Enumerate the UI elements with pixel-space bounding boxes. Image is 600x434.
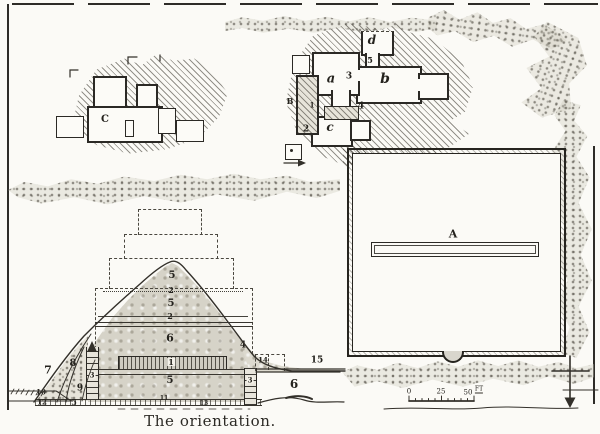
room-c-label: c — [326, 121, 333, 133]
building-c-label: C — [101, 115, 109, 125]
room-a-label: a — [327, 73, 335, 86]
enclosure-a-gate-semicircle — [442, 351, 464, 363]
base-label-11: 11 — [160, 396, 168, 402]
num-5-label: 5 — [367, 56, 373, 64]
left-column-label-3: 3 — [89, 372, 96, 379]
entrance-arrow-head — [298, 160, 306, 167]
terrain-ridge-middle — [8, 163, 340, 208]
layer-2-upper: 2 — [168, 286, 174, 294]
scale-unit: FT — [475, 387, 483, 394]
figure-caption: The orientation. — [105, 412, 315, 430]
left-label-5: 5 — [71, 398, 77, 406]
building-c-pillar — [125, 120, 134, 137]
step-outline-1 — [138, 209, 202, 235]
layer-2-lower: 2 — [167, 312, 173, 320]
enclosure-a-platform — [371, 242, 539, 257]
left-label-7: 7 — [44, 365, 52, 376]
num-4-label: 4 — [358, 103, 364, 112]
room-b-east-doorgap — [415, 79, 422, 91]
left-label-12: 12 — [37, 399, 47, 406]
stratum-line-2 — [98, 316, 248, 317]
scale-25: 25 — [437, 389, 446, 396]
scale-zero: 0 — [407, 389, 411, 396]
right-brick-column — [244, 368, 257, 405]
layer-5-top: 5 — [169, 271, 176, 281]
layer-1: 1 — [167, 358, 175, 366]
building-c-room-west — [56, 116, 84, 138]
step-outline-2 — [124, 234, 218, 259]
door-gap-a-corridor — [334, 89, 345, 94]
layer-5-mid: 5 — [168, 299, 175, 309]
door-gap-a-b — [352, 70, 360, 81]
right-column-label-3: 3 — [247, 377, 254, 384]
num-3-label: 3 — [346, 73, 352, 82]
left-label-9: 9 — [77, 385, 83, 394]
num-1-label: 1 — [310, 102, 315, 109]
tiny-room-dot — [290, 149, 293, 152]
right-label-15: 15 — [311, 357, 324, 366]
section-base-line — [35, 399, 262, 406]
room-d-label: d — [368, 34, 376, 46]
far-right-ground-line — [384, 407, 578, 409]
frame-top — [12, 3, 598, 5]
right-area-wavy-accent — [286, 396, 312, 399]
room-small-square — [350, 120, 371, 141]
right-area-wavy-line — [258, 398, 344, 403]
stratum-line-double — [95, 322, 253, 327]
left-label-8: 8 — [70, 359, 77, 369]
engraving-figure: C a 3 b d 5 B 1 4 2 c A — [0, 0, 600, 434]
base-label-13: 13 — [200, 401, 208, 407]
room-b-east — [418, 73, 449, 100]
room-b-label: b — [380, 72, 390, 86]
right-label-4: 4 — [240, 342, 246, 351]
dashed-box-14-divider — [268, 354, 269, 370]
building-c-room-upperleft — [93, 76, 127, 110]
complex-tiny-room — [285, 144, 302, 160]
scale-50: 50 — [464, 390, 473, 397]
building-c-room-east1 — [158, 108, 176, 134]
scale-bar-ticks — [409, 396, 474, 401]
frame-left — [7, 4, 9, 410]
right-label-6: 6 — [290, 378, 298, 390]
hatched-bar — [324, 106, 359, 120]
complex-room-northwest — [292, 55, 310, 74]
left-label-10: 10 — [36, 389, 46, 396]
court-b-label: B — [287, 97, 294, 105]
layer-6: 6 — [166, 333, 174, 344]
num-2-label: 2 — [303, 126, 309, 135]
right-label-14: 14 — [258, 357, 268, 364]
enclosure-a-label: A — [449, 229, 458, 240]
building-c-room-east2 — [176, 120, 204, 142]
layer-5-base: 5 — [167, 376, 174, 386]
